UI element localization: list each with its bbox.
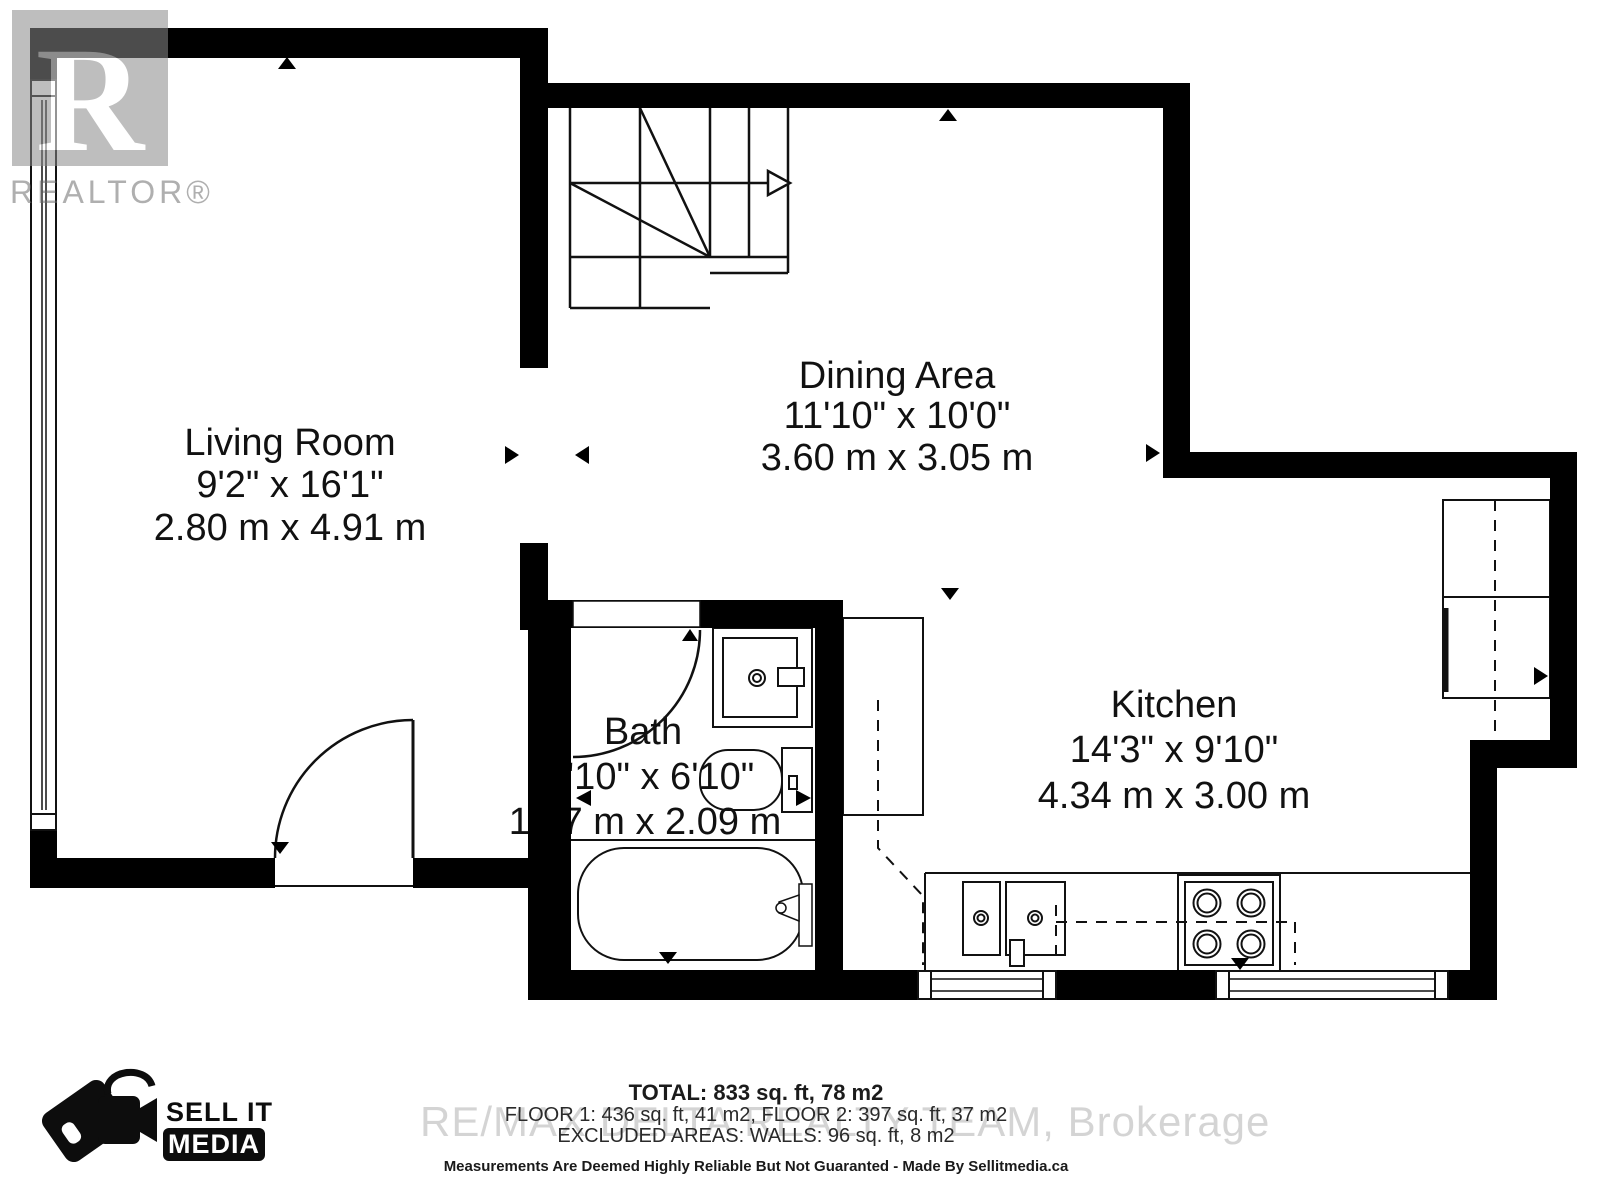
living-room-metric: 2.80 m x 4.91 m [154,507,426,549]
sellit-media-line2: MEDIA [168,1129,260,1159]
area-summary: TOTAL: 833 sq. ft, 78 m2 FLOOR 1: 436 sq… [436,1080,1076,1146]
marker-right-icon [1534,667,1548,685]
marker-down-icon [941,588,959,600]
bathtub [578,848,812,960]
wall-right-lower [1470,740,1497,1000]
kitchen-metric: 4.34 m x 3.00 m [1038,775,1310,817]
window-kitchen-1 [918,970,1056,1000]
wall-bottom-living-left [30,858,275,888]
fridge [1443,500,1550,698]
marker-up-icon [278,57,296,69]
dining-area-label: Dining Area 11'10" x 10'0" 3.60 m x 3.05… [761,355,1033,479]
living-room-label: Living Room 9'2" x 16'1" 2.80 m x 4.91 m [154,422,426,549]
floorplan-drawing: Living Room 9'2" x 16'1" 2.80 m x 4.91 m… [0,0,1600,1200]
marker-right-icon [505,446,519,464]
bath-name: Bath [604,711,682,753]
plan-markers [278,57,1548,970]
door-marker-icon [682,629,698,641]
living-room-door [271,720,413,890]
window-kitchen-2 [1216,970,1448,1000]
stairs-arrow-icon [768,171,790,195]
wall-jog [1163,452,1577,478]
sellit-media-line1: SELL IT [166,1097,273,1127]
marker-left-icon [575,446,589,464]
floorplan-page: Living Room 9'2" x 16'1" 2.80 m x 4.91 m… [0,0,1600,1200]
kitchen-imperial: 14'3" x 9'10" [1070,729,1278,771]
bath-imperial: 5'10" x 6'10" [546,756,754,798]
disclaimer-text: Measurements Are Deemed Highly Reliable … [436,1158,1076,1175]
floor-areas-text: FLOOR 1: 436 sq. ft, 41 m2, FLOOR 2: 397… [436,1106,1076,1125]
room-labels: Living Room 9'2" x 16'1" 2.80 m x 4.91 m… [154,355,1310,843]
excluded-areas-text: EXCLUDED AREAS: WALLS: 96 sq. ft, 8 m2 [436,1127,1076,1146]
kitchen-name: Kitchen [1111,684,1238,726]
living-room-imperial: 9'2" x 16'1" [196,464,383,506]
marker-up-icon [939,109,957,121]
marker-right-icon [1146,444,1160,462]
dining-area-name: Dining Area [799,355,996,397]
door-marker-icon [271,842,289,854]
kitchen-sink [963,882,1065,966]
wall-top-stairs [545,83,1190,108]
wall-dining-right [1163,108,1190,455]
dining-area-metric: 3.60 m x 3.05 m [761,437,1033,479]
counter-section [843,618,923,815]
staircase [570,108,790,308]
bathroom-sink [713,628,812,727]
living-room-name: Living Room [184,422,395,464]
dining-area-imperial: 11'10" x 10'0" [784,395,1011,437]
door-swing-arc [275,720,413,858]
wall-far-right [1550,452,1577,768]
wall-bath-left [528,600,571,1000]
wall-divider-upper [520,28,548,368]
wall-bath-right [815,600,843,1000]
realtor-word: REALTOR® [10,174,214,210]
total-area-text: TOTAL: 833 sq. ft, 78 m2 [436,1080,1076,1106]
sellit-media-icon [38,1072,157,1166]
sellit-media-logo: SELL IT MEDIA [38,1072,273,1166]
kitchen-label: Kitchen 14'3" x 9'10" 4.34 m x 3.00 m [1038,684,1310,817]
stove [1178,875,1280,972]
realtor-logo-letter: R [36,17,146,183]
